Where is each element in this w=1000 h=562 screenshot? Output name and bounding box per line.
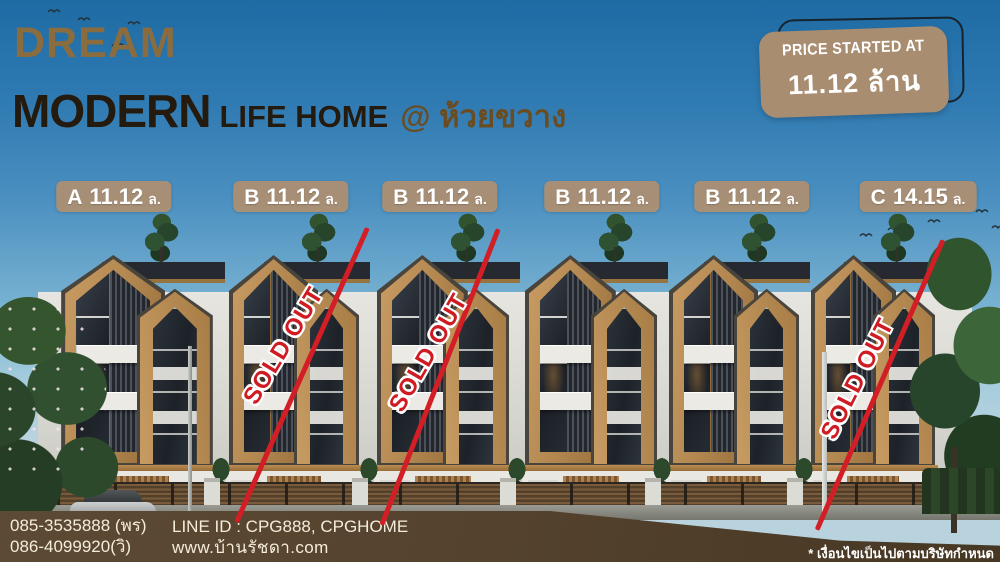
unit-letter: B <box>244 182 259 213</box>
unit-price: 11.12 <box>727 181 781 212</box>
hedge <box>922 468 1000 514</box>
glass-balustrade <box>750 367 783 380</box>
side-gable-wood-frame <box>737 292 796 464</box>
disclaimer-note: * เงื่อนไขเป็นไปตามบริษัทกำหนด <box>808 543 994 562</box>
unit-price: 11.12 <box>415 181 469 212</box>
project-subtitle: LIFE HOME <box>219 101 388 132</box>
rooftop-tree <box>297 211 339 267</box>
side-gable <box>591 289 657 467</box>
unit-price-suffix: ล. <box>636 184 648 215</box>
unit-price-badge-3: B 11.12 ล. <box>382 181 497 212</box>
project-title-line: MODERN LIFE HOME @ ห้วยขวาง <box>12 88 566 134</box>
unit-price-badge-4: B 11.12 ล. <box>544 181 659 212</box>
price-value: 11.12 ล้าน <box>787 59 921 107</box>
unit-letter: A <box>67 182 82 213</box>
unit-price-badge-6: C 14.15 ล. <box>860 181 977 212</box>
phone-number-2: 086-4099920(วิ) <box>10 538 131 557</box>
unit-price-badge-2: B 11.12 ล. <box>233 181 348 212</box>
glass-balustrade <box>607 411 641 424</box>
glass-balustrade <box>459 411 493 424</box>
glass-balustrade <box>459 367 493 380</box>
brand-name: DREAM <box>14 22 177 65</box>
unit-price-suffix: ล. <box>325 184 337 215</box>
townhouse-unit-5 <box>666 255 802 515</box>
blossom-tree <box>0 268 153 530</box>
unit-price: 11.12 <box>266 181 320 212</box>
unit-letter: B <box>705 182 720 213</box>
glass-balustrade <box>607 367 641 380</box>
unit-price: 11.12 <box>577 181 631 212</box>
ad-poster: 085-3535888 (พร) 086-4099920(วิ) LINE ID… <box>0 0 1000 562</box>
phone-number-1: 085-3535888 (พร) <box>10 517 147 536</box>
utility-pole <box>188 346 192 514</box>
unit-letter: B <box>555 182 570 213</box>
price-badge: PRICE STARTED AT 11.12 ล้าน <box>760 18 970 120</box>
project-location: @ ห้วยขวาง <box>400 101 566 132</box>
side-gable-glass <box>750 307 783 464</box>
price-caption: PRICE STARTED AT <box>782 38 925 61</box>
rooftop-tree <box>446 211 488 267</box>
unit-letter: B <box>393 182 408 213</box>
price-badge-box: PRICE STARTED AT 11.12 ล้าน <box>759 26 950 119</box>
unit-price-badge-5: B 11.12 ล. <box>694 181 809 212</box>
glass-balustrade <box>310 411 343 424</box>
rooftop-tree <box>140 211 182 267</box>
unit-price-badge-1: A 11.12 ล. <box>56 181 171 212</box>
side-gable-glass <box>607 307 641 464</box>
unit-price-suffix: ล. <box>953 184 965 215</box>
side-gable-glass <box>310 307 343 464</box>
website-url: www.บ้านรัชดา.com <box>172 539 329 558</box>
unit-price-suffix: ล. <box>786 184 798 215</box>
unit-price: 11.12 <box>89 181 143 212</box>
townhouse-unit-4 <box>522 255 660 515</box>
rooftop-tree <box>737 211 779 267</box>
glass-balustrade <box>750 411 783 424</box>
unit-price: 14.15 <box>893 181 948 212</box>
glass-balustrade <box>310 367 343 380</box>
unit-letter: C <box>871 182 886 213</box>
rooftop-tree <box>594 211 636 267</box>
line-id: LINE ID : CPG888, CPGHOME <box>172 518 408 537</box>
side-gable <box>734 289 799 467</box>
side-gable-glass <box>459 307 493 464</box>
project-title: MODERN <box>12 88 210 134</box>
unit-price-suffix: ล. <box>148 184 160 215</box>
side-gable-wood-frame <box>594 292 654 464</box>
unit-price-suffix: ล. <box>474 184 486 215</box>
